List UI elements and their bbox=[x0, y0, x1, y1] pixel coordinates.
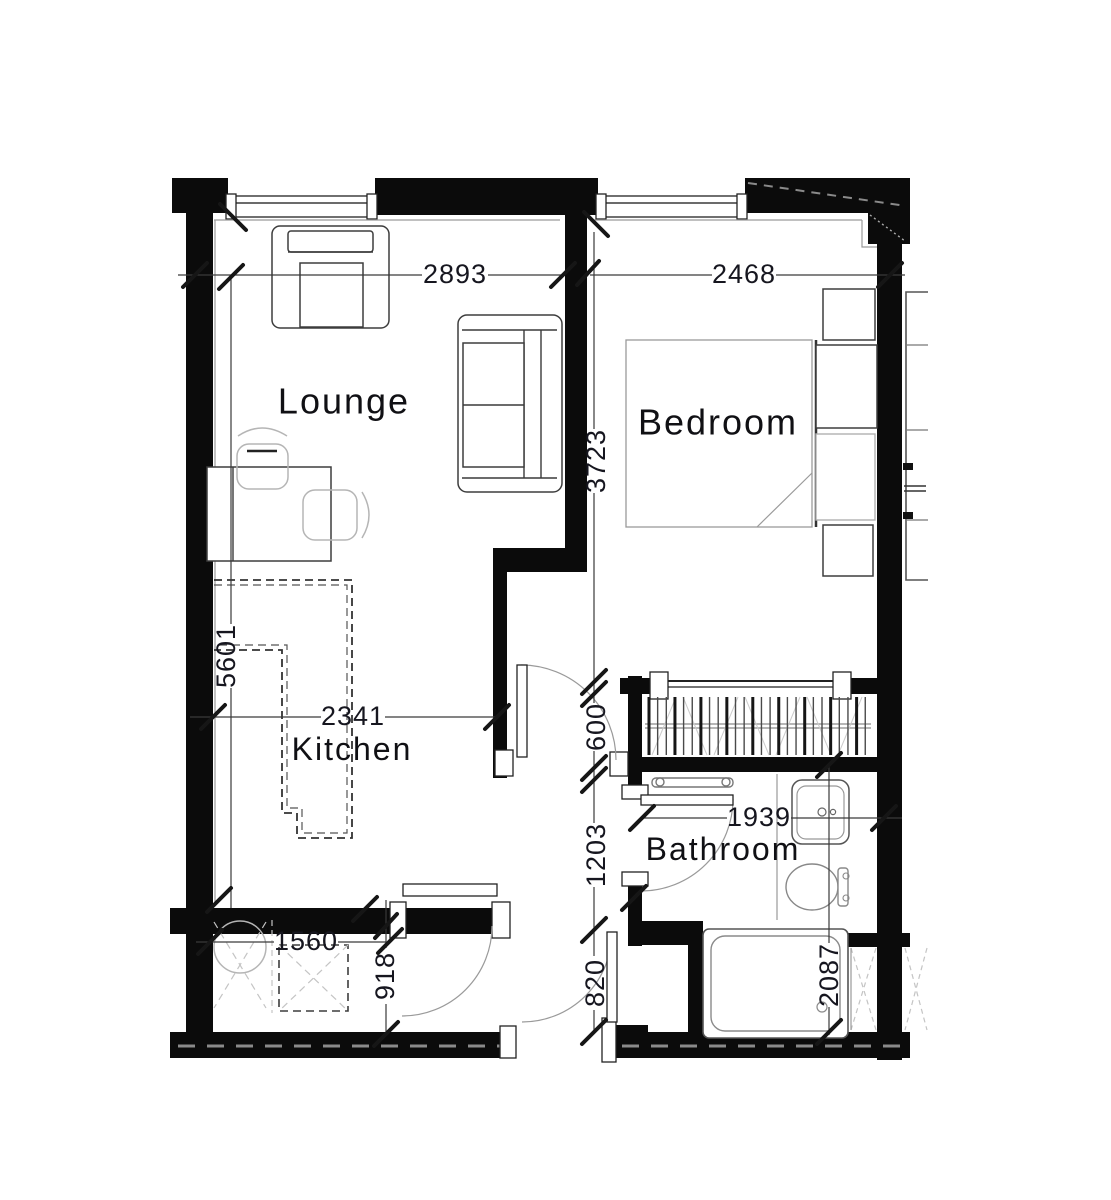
dim-bathroom-depth: 1203 bbox=[581, 823, 611, 887]
wall-top-middle bbox=[375, 178, 598, 215]
closet-track-post-right bbox=[833, 672, 851, 699]
dim-bedroom-width: 2468 bbox=[712, 259, 776, 289]
hall-door-leaf bbox=[403, 884, 497, 896]
desk bbox=[207, 467, 331, 561]
dim-entry-door-width: 820 bbox=[580, 959, 610, 1007]
clothes-line bbox=[745, 697, 769, 755]
nightstand-top bbox=[823, 289, 875, 340]
hall-door bbox=[390, 884, 510, 1016]
wall-divider-jog bbox=[493, 548, 587, 572]
room-label-kitchen: Kitchen bbox=[292, 731, 413, 767]
wall-closet-top-left-stub bbox=[620, 678, 652, 694]
wall-mark bbox=[903, 512, 913, 519]
sofa bbox=[458, 315, 562, 492]
dim-lounge-width: 2893 bbox=[423, 259, 487, 289]
wall-closet-top-right-stub bbox=[849, 678, 877, 694]
adjacent-unit-fragments bbox=[903, 292, 928, 580]
lounge-window bbox=[226, 194, 377, 219]
bathroom-door-leaf bbox=[641, 795, 733, 805]
towel-rail bbox=[652, 778, 733, 787]
floor-plan-drawing: Lounge Bedroom Kitchen Bathroom 2893 246… bbox=[0, 0, 1111, 1200]
dim-bathroom-length: 2087 bbox=[814, 943, 844, 1007]
hall-door-swing-arc bbox=[402, 926, 492, 1016]
floor-plan-page: Lounge Bedroom Kitchen Bathroom 2893 246… bbox=[0, 0, 1111, 1200]
mirrored-furniture-bracket bbox=[906, 292, 928, 580]
room-label-bathroom: Bathroom bbox=[646, 831, 801, 867]
dim-wardrobe-depth: 600 bbox=[581, 703, 611, 751]
wall-mark bbox=[903, 463, 913, 470]
dim-hall-depth: 918 bbox=[370, 952, 400, 1000]
wardrobe bbox=[645, 672, 871, 755]
wall-tub-left bbox=[688, 921, 703, 1038]
room-label-bedroom: Bedroom bbox=[638, 402, 798, 443]
armchair bbox=[272, 226, 389, 328]
closet-hanging-clothes bbox=[649, 697, 865, 755]
clothes-line bbox=[652, 697, 676, 755]
dim-bedroom-depth: 3723 bbox=[581, 429, 611, 493]
wall-shaft-top bbox=[848, 933, 910, 947]
sink bbox=[792, 780, 849, 844]
kitchen-door-leaf bbox=[517, 665, 527, 757]
dim-bathroom-width: 1939 bbox=[727, 802, 791, 832]
clothes-line bbox=[683, 697, 707, 755]
bedroom-window bbox=[596, 194, 747, 219]
closet-track-post-left bbox=[650, 672, 668, 699]
wall-kitchen-partition bbox=[493, 572, 507, 778]
nightstand-bottom bbox=[823, 525, 873, 576]
room-label-lounge: Lounge bbox=[278, 381, 410, 422]
toilet bbox=[786, 864, 849, 910]
dim-utility-width: 1560 bbox=[274, 926, 338, 956]
dim-lounge-kitchen-depth: 5601 bbox=[211, 624, 241, 688]
dim-kitchen-width: 2341 bbox=[321, 701, 385, 731]
clothes-line bbox=[807, 697, 831, 755]
wall-bathroom-top bbox=[628, 757, 902, 772]
headboard-panel-top bbox=[816, 345, 877, 428]
headboard-panel-bottom bbox=[816, 434, 875, 520]
clothes-line bbox=[838, 697, 862, 755]
